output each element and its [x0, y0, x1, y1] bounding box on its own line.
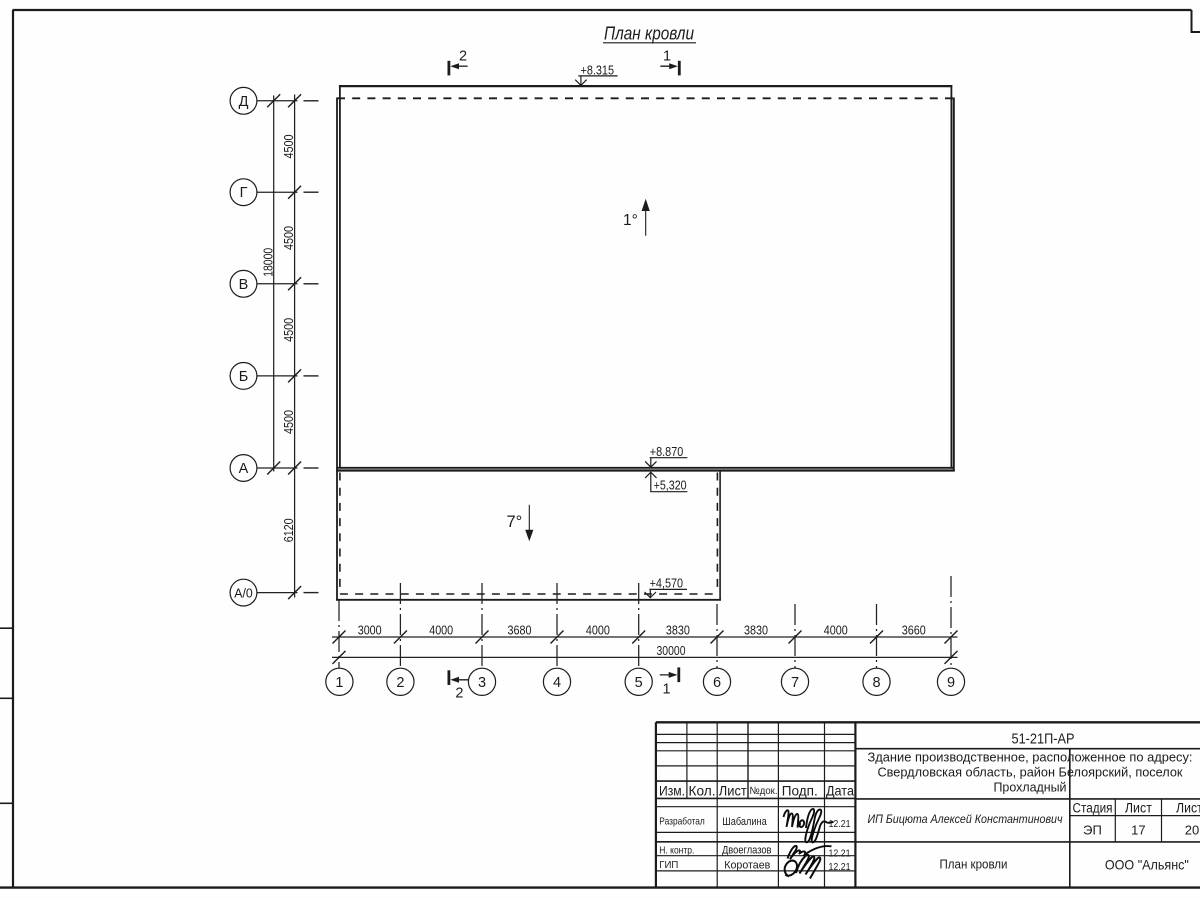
svg-text:30000: 30000 — [657, 644, 686, 658]
svg-text:2: 2 — [459, 48, 467, 64]
svg-text:Н. контр.: Н. контр. — [659, 845, 694, 856]
svg-text:ЭП: ЭП — [1083, 823, 1102, 838]
svg-text:12.21: 12.21 — [829, 819, 851, 830]
svg-text:А/0: А/0 — [234, 586, 253, 600]
svg-text:8: 8 — [872, 675, 880, 691]
svg-text:2: 2 — [396, 675, 404, 691]
svg-text:+5,320: +5,320 — [654, 479, 687, 493]
svg-text:+8.315: +8.315 — [581, 63, 615, 77]
svg-text:Лист: Лист — [719, 783, 747, 798]
svg-text:4: 4 — [553, 675, 561, 691]
svg-text:№док.: №док. — [750, 785, 778, 797]
svg-text:Здание производственное, распо: Здание производственное, расположенное п… — [868, 749, 1193, 764]
svg-text:51-21П-АР: 51-21П-АР — [1012, 732, 1075, 748]
svg-text:Изм.: Изм. — [659, 783, 685, 798]
svg-text:3000: 3000 — [358, 623, 382, 637]
svg-text:План кровли: План кровли — [604, 23, 694, 44]
svg-text:6: 6 — [713, 675, 721, 691]
svg-text:4000: 4000 — [824, 623, 848, 637]
svg-text:Г: Г — [240, 185, 248, 201]
svg-text:Б: Б — [239, 369, 249, 385]
svg-text:План кровли: План кровли — [940, 857, 1008, 872]
svg-text:+8.870: +8.870 — [650, 445, 684, 459]
svg-text:1: 1 — [335, 675, 343, 691]
svg-text:2: 2 — [455, 686, 463, 702]
svg-text:+4,570: +4,570 — [650, 577, 684, 591]
svg-text:В: В — [239, 277, 249, 293]
svg-text:3660: 3660 — [902, 623, 926, 637]
svg-text:9: 9 — [947, 675, 955, 691]
svg-text:1°: 1° — [623, 212, 638, 229]
svg-text:Прохладный: Прохладный — [994, 780, 1067, 795]
svg-text:Двоеглазов: Двоеглазов — [722, 845, 772, 857]
svg-text:1: 1 — [663, 49, 671, 65]
svg-text:Д: Д — [239, 94, 249, 110]
svg-text:6120: 6120 — [282, 518, 296, 542]
svg-text:5: 5 — [635, 675, 643, 691]
svg-text:12.21: 12.21 — [829, 862, 851, 873]
svg-text:4500: 4500 — [282, 134, 296, 158]
svg-text:1: 1 — [663, 681, 671, 697]
svg-text:Свердловская область, район Бе: Свердловская область, район Белоярский, … — [878, 765, 1183, 780]
svg-text:7: 7 — [791, 675, 799, 691]
svg-text:4000: 4000 — [586, 623, 610, 637]
svg-text:ГИП: ГИП — [659, 860, 678, 871]
svg-text:3830: 3830 — [666, 623, 690, 637]
svg-text:ИП Бицюта Алексей Константинов: ИП Бицюта Алексей Константинович — [868, 812, 1064, 826]
svg-text:3680: 3680 — [508, 623, 532, 637]
svg-text:3: 3 — [478, 675, 486, 691]
svg-text:17: 17 — [1131, 823, 1145, 838]
svg-text:3830: 3830 — [744, 623, 768, 637]
svg-text:Дата: Дата — [826, 783, 854, 798]
svg-text:Лист: Лист — [1125, 800, 1152, 815]
svg-text:Подп.: Подп. — [782, 783, 818, 798]
svg-text:18000: 18000 — [261, 248, 275, 277]
svg-text:А: А — [239, 461, 249, 477]
svg-text:Листов: Листов — [1176, 800, 1200, 815]
svg-text:12.21: 12.21 — [829, 848, 851, 859]
svg-text:Коротаев: Коротаев — [724, 859, 770, 871]
svg-text:4500: 4500 — [282, 226, 296, 250]
svg-text:Разработал: Разработал — [659, 816, 705, 828]
svg-text:Стадия: Стадия — [1073, 800, 1113, 815]
svg-text:Кол.: Кол. — [689, 783, 716, 798]
svg-text:4000: 4000 — [429, 623, 453, 637]
svg-text:Шабалина: Шабалина — [722, 816, 766, 828]
svg-text:20: 20 — [1185, 823, 1199, 838]
svg-text:4500: 4500 — [282, 410, 296, 434]
svg-text:4500: 4500 — [282, 318, 296, 342]
svg-text:ООО "Альянс": ООО "Альянс" — [1105, 858, 1189, 873]
svg-text:7°: 7° — [507, 513, 523, 531]
